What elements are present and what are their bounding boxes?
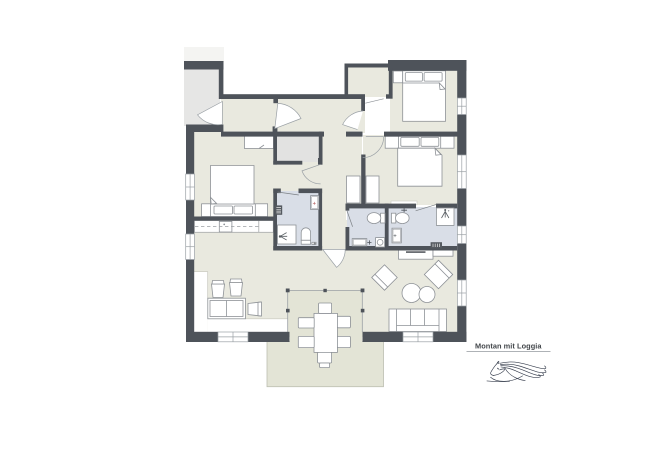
svg-text:Montan mit Loggia: Montan mit Loggia bbox=[475, 342, 542, 351]
